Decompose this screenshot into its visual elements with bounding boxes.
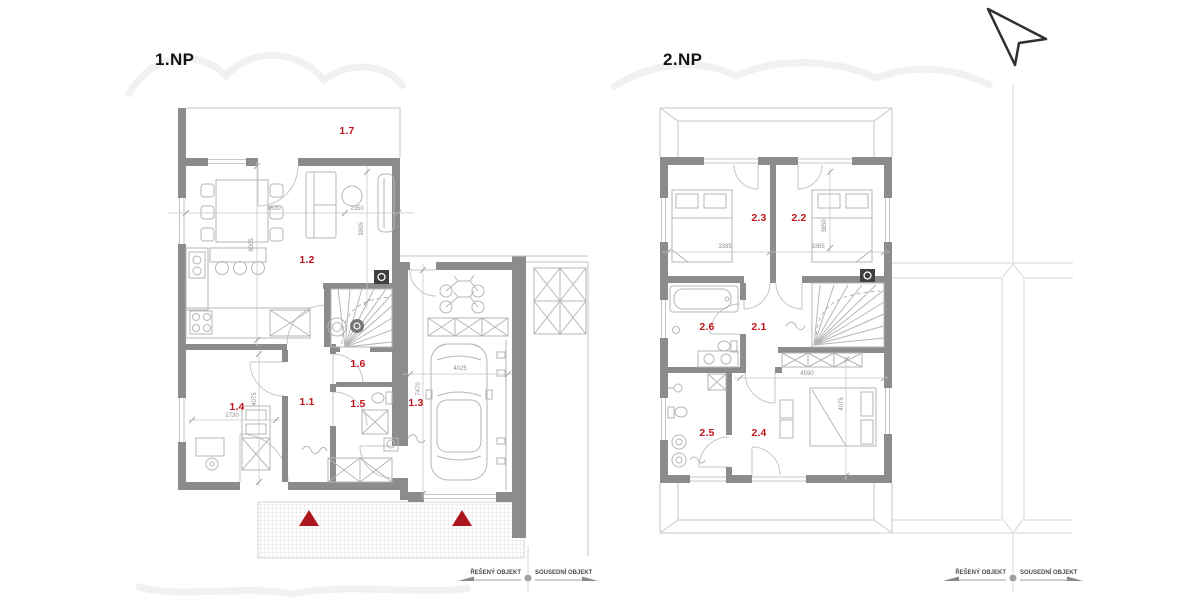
interior-walls [186,283,400,482]
chimney [374,270,389,284]
room-label-1-4: 1.4 [229,401,244,413]
legend-neighbor-object-1: SOUSEDNÍ OBJEKT [535,570,592,576]
wc-2-5 [668,374,726,467]
bedroom-2-4 [780,388,876,446]
windows [180,160,247,443]
car [426,344,492,480]
room-label-2-4: 2.4 [751,427,766,439]
room-label-2-3: 2.3 [751,212,766,224]
dim-2350: 2350 [350,206,363,212]
hall-sketch [786,322,805,330]
chimney [860,269,875,282]
cursor-arrow-icon [988,9,1046,65]
dim-2730: 2730 [225,413,238,419]
dim-3385-a: 3385 [718,244,731,250]
room-label-2-1: 2.1 [751,321,766,333]
room-label-1-7: 1.7 [339,125,354,137]
room-label-2-5: 2.5 [699,427,714,439]
bed-2-3 [672,190,732,262]
hall-wardrobe [302,446,392,482]
wardrobe-band [782,353,862,367]
neighbour-structure [526,262,588,556]
dim-3385-b: 3385 [811,244,824,250]
legend-solved-object-1: ŘEŠENÝ OBJEKT [462,570,521,576]
staircase [812,283,884,347]
neighbour-object-lines [880,85,1073,565]
staircase [328,289,392,347]
terrace [178,108,400,158]
dim-4590: 4590 [800,371,813,377]
room-label-1-5: 1.5 [350,398,365,410]
sofa [306,172,394,238]
floor-plan-2np [660,85,1083,592]
title-2np: 2.NP [663,50,702,70]
roof-outline-bottom [660,483,892,533]
paving-hatch [258,502,524,558]
room-label-1-2: 1.2 [299,254,314,266]
bicycle-icons [440,275,484,313]
legend-neighbor-object-2: SOUSEDNÍ OBJEKT [1020,570,1077,576]
floorplan-drawing [0,0,1200,600]
floorplan-canvas: 1.NP 2.NP 1.7 1.2 1.6 1.1 1.5 1.4 1.3 45… [0,0,1200,600]
room-label-1-1: 1.1 [299,396,314,408]
dim-4075-f1: 4075 [252,392,258,405]
room-label-2-2: 2.2 [791,212,806,224]
room-label-1-6: 1.6 [350,358,365,370]
dim-4530: 4530 [267,206,280,212]
kitchen [186,248,310,338]
dim-3905: 3905 [359,222,365,235]
interior-walls [660,165,884,475]
dim-6005: 6005 [249,238,255,251]
bed-2-2 [812,190,872,262]
dim-3850: 3850 [822,219,828,232]
room-label-2-6: 2.6 [699,321,714,333]
floor-plan-1np [168,108,598,592]
roof-outline-top [660,108,892,157]
dim-7470: 7470 [416,382,422,395]
dim-4025: 4025 [453,366,466,372]
title-1np: 1.NP [155,50,194,70]
room-label-1-3: 1.3 [408,397,423,409]
dim-4075-f2: 4075 [839,397,845,410]
legend-solved-object-2: ŘEŠENÝ OBJEKT [947,570,1006,576]
